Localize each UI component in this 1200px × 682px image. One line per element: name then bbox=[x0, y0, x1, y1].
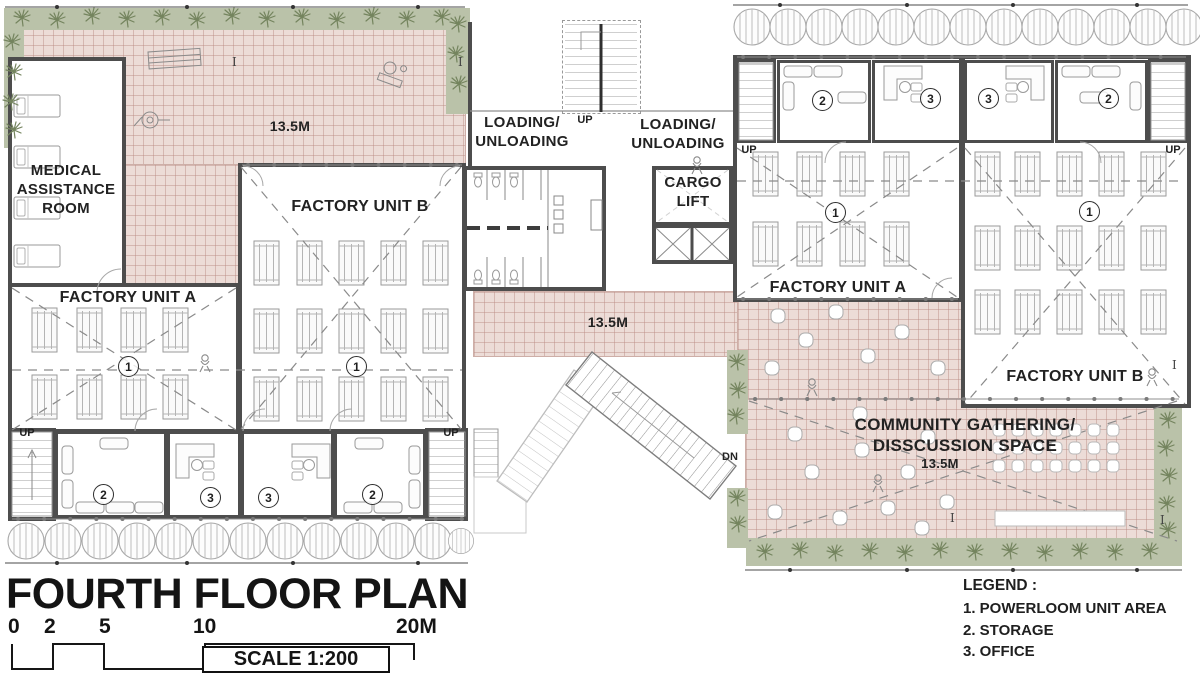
label-up-5: UP bbox=[1160, 144, 1186, 158]
stair-right-bldg-left bbox=[736, 59, 776, 143]
badge-powerloom-b-left: 1 bbox=[346, 356, 367, 377]
cargo-lift-shafts bbox=[652, 224, 733, 264]
label-loading-left: LOADING/ UNLOADING bbox=[466, 114, 578, 152]
scale-mark-2: 2 bbox=[44, 615, 56, 639]
room-washrooms bbox=[463, 166, 606, 291]
badge-storage-tr2: 2 bbox=[1098, 88, 1119, 109]
badge-powerloom-a-left: 1 bbox=[118, 356, 139, 377]
terrace-left-extension bbox=[124, 164, 240, 290]
badge-powerloom-b-right: 1 bbox=[1079, 201, 1100, 222]
floor-plan: MEDICAL ASSISTANCE ROOM FACTORY UNIT A F… bbox=[0, 0, 1200, 682]
room-office-bl2 bbox=[240, 430, 335, 519]
label-loading-right: LOADING/ UNLOADING bbox=[622, 116, 734, 154]
scale-mark-5: 5 bbox=[99, 615, 111, 639]
planting-strip-mid-upper bbox=[727, 350, 748, 434]
room-storage-bl bbox=[54, 430, 168, 519]
scale-mark-10: 10 bbox=[193, 615, 216, 639]
badge-office-bl2: 3 bbox=[258, 487, 279, 508]
badge-office-tr2: 3 bbox=[978, 88, 999, 109]
label-factory-b-left: FACTORY UNIT B bbox=[250, 197, 470, 217]
label-up-3: UP bbox=[572, 114, 598, 128]
badge-office-tr: 3 bbox=[920, 88, 941, 109]
label-medical-room: MEDICAL ASSISTANCE ROOM bbox=[10, 162, 122, 218]
stair-right-bldg-right bbox=[1148, 59, 1188, 143]
label-factory-b-right: FACTORY UNIT B bbox=[965, 367, 1185, 387]
planting-strip-mid-lower bbox=[727, 488, 748, 548]
column-marker-4: I bbox=[1160, 513, 1165, 527]
legend-item-office: 3. OFFICE bbox=[963, 641, 1167, 663]
legend-item-powerloom: 1. POWERLOOM UNIT AREA bbox=[963, 598, 1167, 620]
terrace-right-upper bbox=[737, 298, 963, 400]
label-up-2: UP bbox=[438, 427, 464, 441]
legend: LEGEND : 1. POWERLOOM UNIT AREA 2. STORA… bbox=[963, 577, 1167, 663]
badge-office-bl: 3 bbox=[200, 487, 221, 508]
column-marker-5: I bbox=[1172, 358, 1177, 372]
planting-strip-top-left bbox=[4, 8, 466, 30]
legend-heading: LEGEND : bbox=[963, 577, 1167, 595]
planting-strip-community-right bbox=[1154, 404, 1182, 544]
column-marker-1: I bbox=[232, 55, 237, 69]
scale-mark-20: 20M bbox=[396, 615, 437, 639]
stair-bottom-right bbox=[425, 428, 468, 521]
scale-mark-0: 0 bbox=[8, 615, 20, 639]
drawing-title: FOURTH FLOOR PLAN bbox=[6, 570, 468, 619]
label-up-1: UP bbox=[14, 427, 40, 441]
column-marker-2: I bbox=[458, 55, 463, 69]
scale-label: SCALE 1:200 bbox=[202, 646, 390, 673]
badge-storage-bl: 2 bbox=[93, 484, 114, 505]
label-dim-community: 13.5M bbox=[890, 456, 990, 472]
room-storage-bl2 bbox=[333, 430, 427, 519]
room-office-tr bbox=[872, 60, 962, 143]
stair-bottom-left bbox=[8, 428, 56, 521]
label-up-4: UP bbox=[736, 144, 762, 158]
label-dim-terrace: 13.5M bbox=[235, 118, 345, 136]
legend-item-storage: 2. STORAGE bbox=[963, 620, 1167, 642]
planting-strip-community-bottom bbox=[746, 538, 1182, 566]
label-cargo-lift: CARGO LIFT bbox=[656, 174, 730, 212]
badge-storage-bl2: 2 bbox=[362, 484, 383, 505]
label-community: COMMUNITY GATHERING/ DISSCUSSION SPACE bbox=[840, 414, 1090, 457]
column-marker-3: I bbox=[950, 511, 955, 525]
badge-powerloom-a-right: 1 bbox=[825, 202, 846, 223]
badge-storage-tr: 2 bbox=[812, 90, 833, 111]
label-dim-corridor: 13.5M bbox=[553, 314, 663, 332]
label-dn: DN bbox=[716, 451, 744, 465]
stair-top-center bbox=[562, 20, 641, 114]
label-factory-a-left: FACTORY UNIT A bbox=[18, 288, 238, 308]
label-factory-a-right: FACTORY UNIT A bbox=[728, 278, 948, 298]
